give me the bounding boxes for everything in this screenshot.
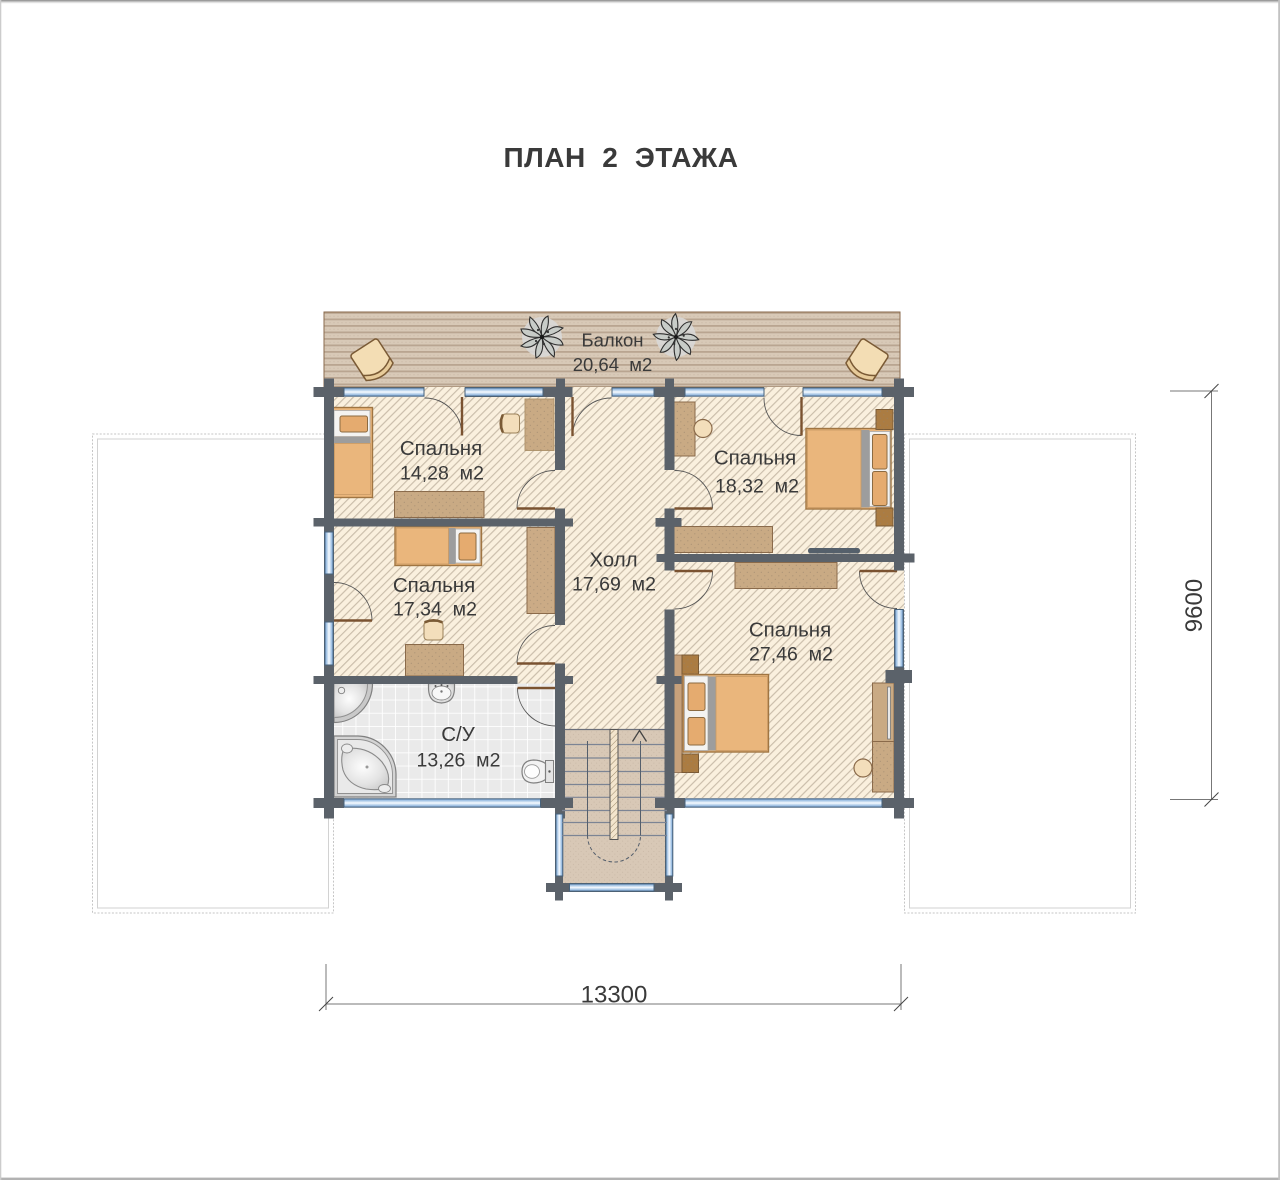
svg-text:Спальня: Спальня — [714, 447, 796, 470]
svg-text:9600: 9600 — [1181, 579, 1208, 632]
svg-text:14,28 м2: 14,28 м2 — [400, 463, 484, 485]
svg-text:27,46 м2: 27,46 м2 — [749, 644, 833, 666]
svg-text:17,69 м2: 17,69 м2 — [572, 574, 656, 596]
svg-text:ПЛАН 2 ЭТАЖА: ПЛАН 2 ЭТАЖА — [504, 142, 739, 173]
svg-text:18,32 м2: 18,32 м2 — [715, 476, 799, 498]
svg-text:17,34 м2: 17,34 м2 — [393, 599, 477, 621]
svg-text:Спальня: Спальня — [393, 574, 475, 597]
svg-text:Холл: Холл — [589, 549, 637, 572]
svg-text:Спальня: Спальня — [749, 619, 831, 642]
svg-text:13300: 13300 — [581, 982, 648, 1009]
svg-text:20,64 м2: 20,64 м2 — [573, 354, 653, 375]
svg-text:Спальня: Спальня — [400, 437, 482, 460]
svg-text:С/У: С/У — [441, 723, 476, 746]
svg-text:Балкон: Балкон — [581, 330, 643, 351]
svg-text:13,26 м2: 13,26 м2 — [417, 750, 501, 772]
